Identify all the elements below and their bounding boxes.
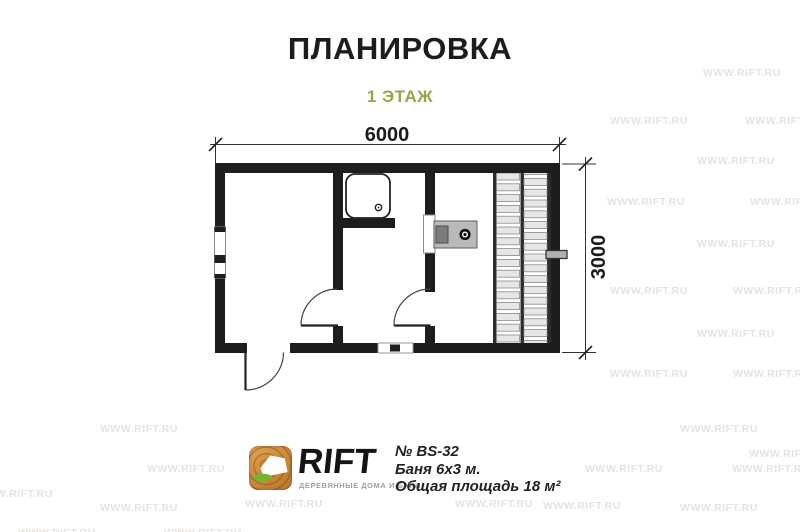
spec-model: № BS-32: [395, 443, 560, 461]
dimension-right: 3000: [562, 157, 610, 360]
bench-plank: [524, 319, 547, 326]
bottom-wall-right: [413, 343, 560, 353]
bench-plank: [524, 297, 547, 304]
bottom-wall-middle: [290, 343, 378, 353]
bench-plank: [524, 330, 547, 337]
bench-plank: [497, 173, 520, 180]
bench-plank: [524, 276, 547, 283]
shower-nook-wall: [333, 218, 395, 228]
bench-plank: [524, 200, 547, 207]
bench-plank: [524, 222, 547, 229]
bench-plank: [524, 189, 547, 196]
bench-plank: [524, 265, 547, 272]
stove: [424, 215, 478, 253]
bench-plank: [497, 205, 520, 212]
specs: № BS-32 Баня 6х3 м. Общая площадь 18 м²: [395, 443, 560, 496]
stove-firebox: [436, 226, 448, 243]
door-steam-room: [394, 289, 431, 326]
spec-area: Общая площадь 18 м²: [395, 478, 560, 496]
interior-wall-1: [333, 173, 343, 343]
stove-heater: [459, 229, 470, 240]
logo-wood-icon: [249, 446, 292, 490]
bench-plank: [497, 184, 520, 191]
bench-plank: [497, 324, 520, 331]
bench-plank: [524, 178, 547, 185]
dimension-top: 6000: [209, 124, 566, 163]
bench-plank: [497, 281, 520, 288]
bench-plank: [497, 195, 520, 202]
bench-plank: [497, 259, 520, 266]
entrance-door-jamb-right: [290, 345, 296, 353]
bench-plank: [524, 254, 547, 261]
bench-plank: [497, 227, 520, 234]
bench-plank: [497, 303, 520, 310]
bench-plank: [497, 270, 520, 277]
bench-plank: [524, 243, 547, 250]
bench-plank: [497, 313, 520, 320]
page: WWW.RIFT.RUWWW.RIFT.RUWWW.RIFT.RUWWW.RIF…: [0, 0, 800, 532]
logo: RIFT ДЕРЕВЯННЫЕ ДОМА И БАНИ: [249, 445, 389, 495]
bench-plank: [524, 286, 547, 293]
height-dimension-label: 3000: [588, 235, 610, 280]
entrance-door-jamb-left: [240, 345, 247, 353]
bench-plank: [497, 249, 520, 256]
bottom-window: [378, 343, 413, 353]
window-left: [215, 227, 226, 278]
top-wall: [215, 163, 560, 173]
bench-plank: [497, 238, 520, 245]
door-left-room: [301, 289, 338, 326]
entrance-door: [246, 353, 284, 391]
width-dimension-label: 6000: [365, 124, 410, 146]
bench-plank: [524, 232, 547, 239]
bench-plank: [497, 216, 520, 223]
floor-subtitle: 1 ЭТАЖ: [0, 87, 800, 107]
shower-tray: [346, 174, 390, 218]
page-title: ПЛАНИРОВКА: [0, 31, 800, 67]
bench-plank: [524, 211, 547, 218]
stove-firebox-tunnel: [424, 215, 436, 253]
door-handle: [546, 251, 567, 259]
bench-plank: [497, 292, 520, 299]
logo-wordmark: RIFT: [296, 442, 378, 482]
bench-plank: [497, 335, 520, 342]
spec-name: Баня 6х3 м.: [395, 461, 560, 479]
bench-plank: [524, 308, 547, 315]
